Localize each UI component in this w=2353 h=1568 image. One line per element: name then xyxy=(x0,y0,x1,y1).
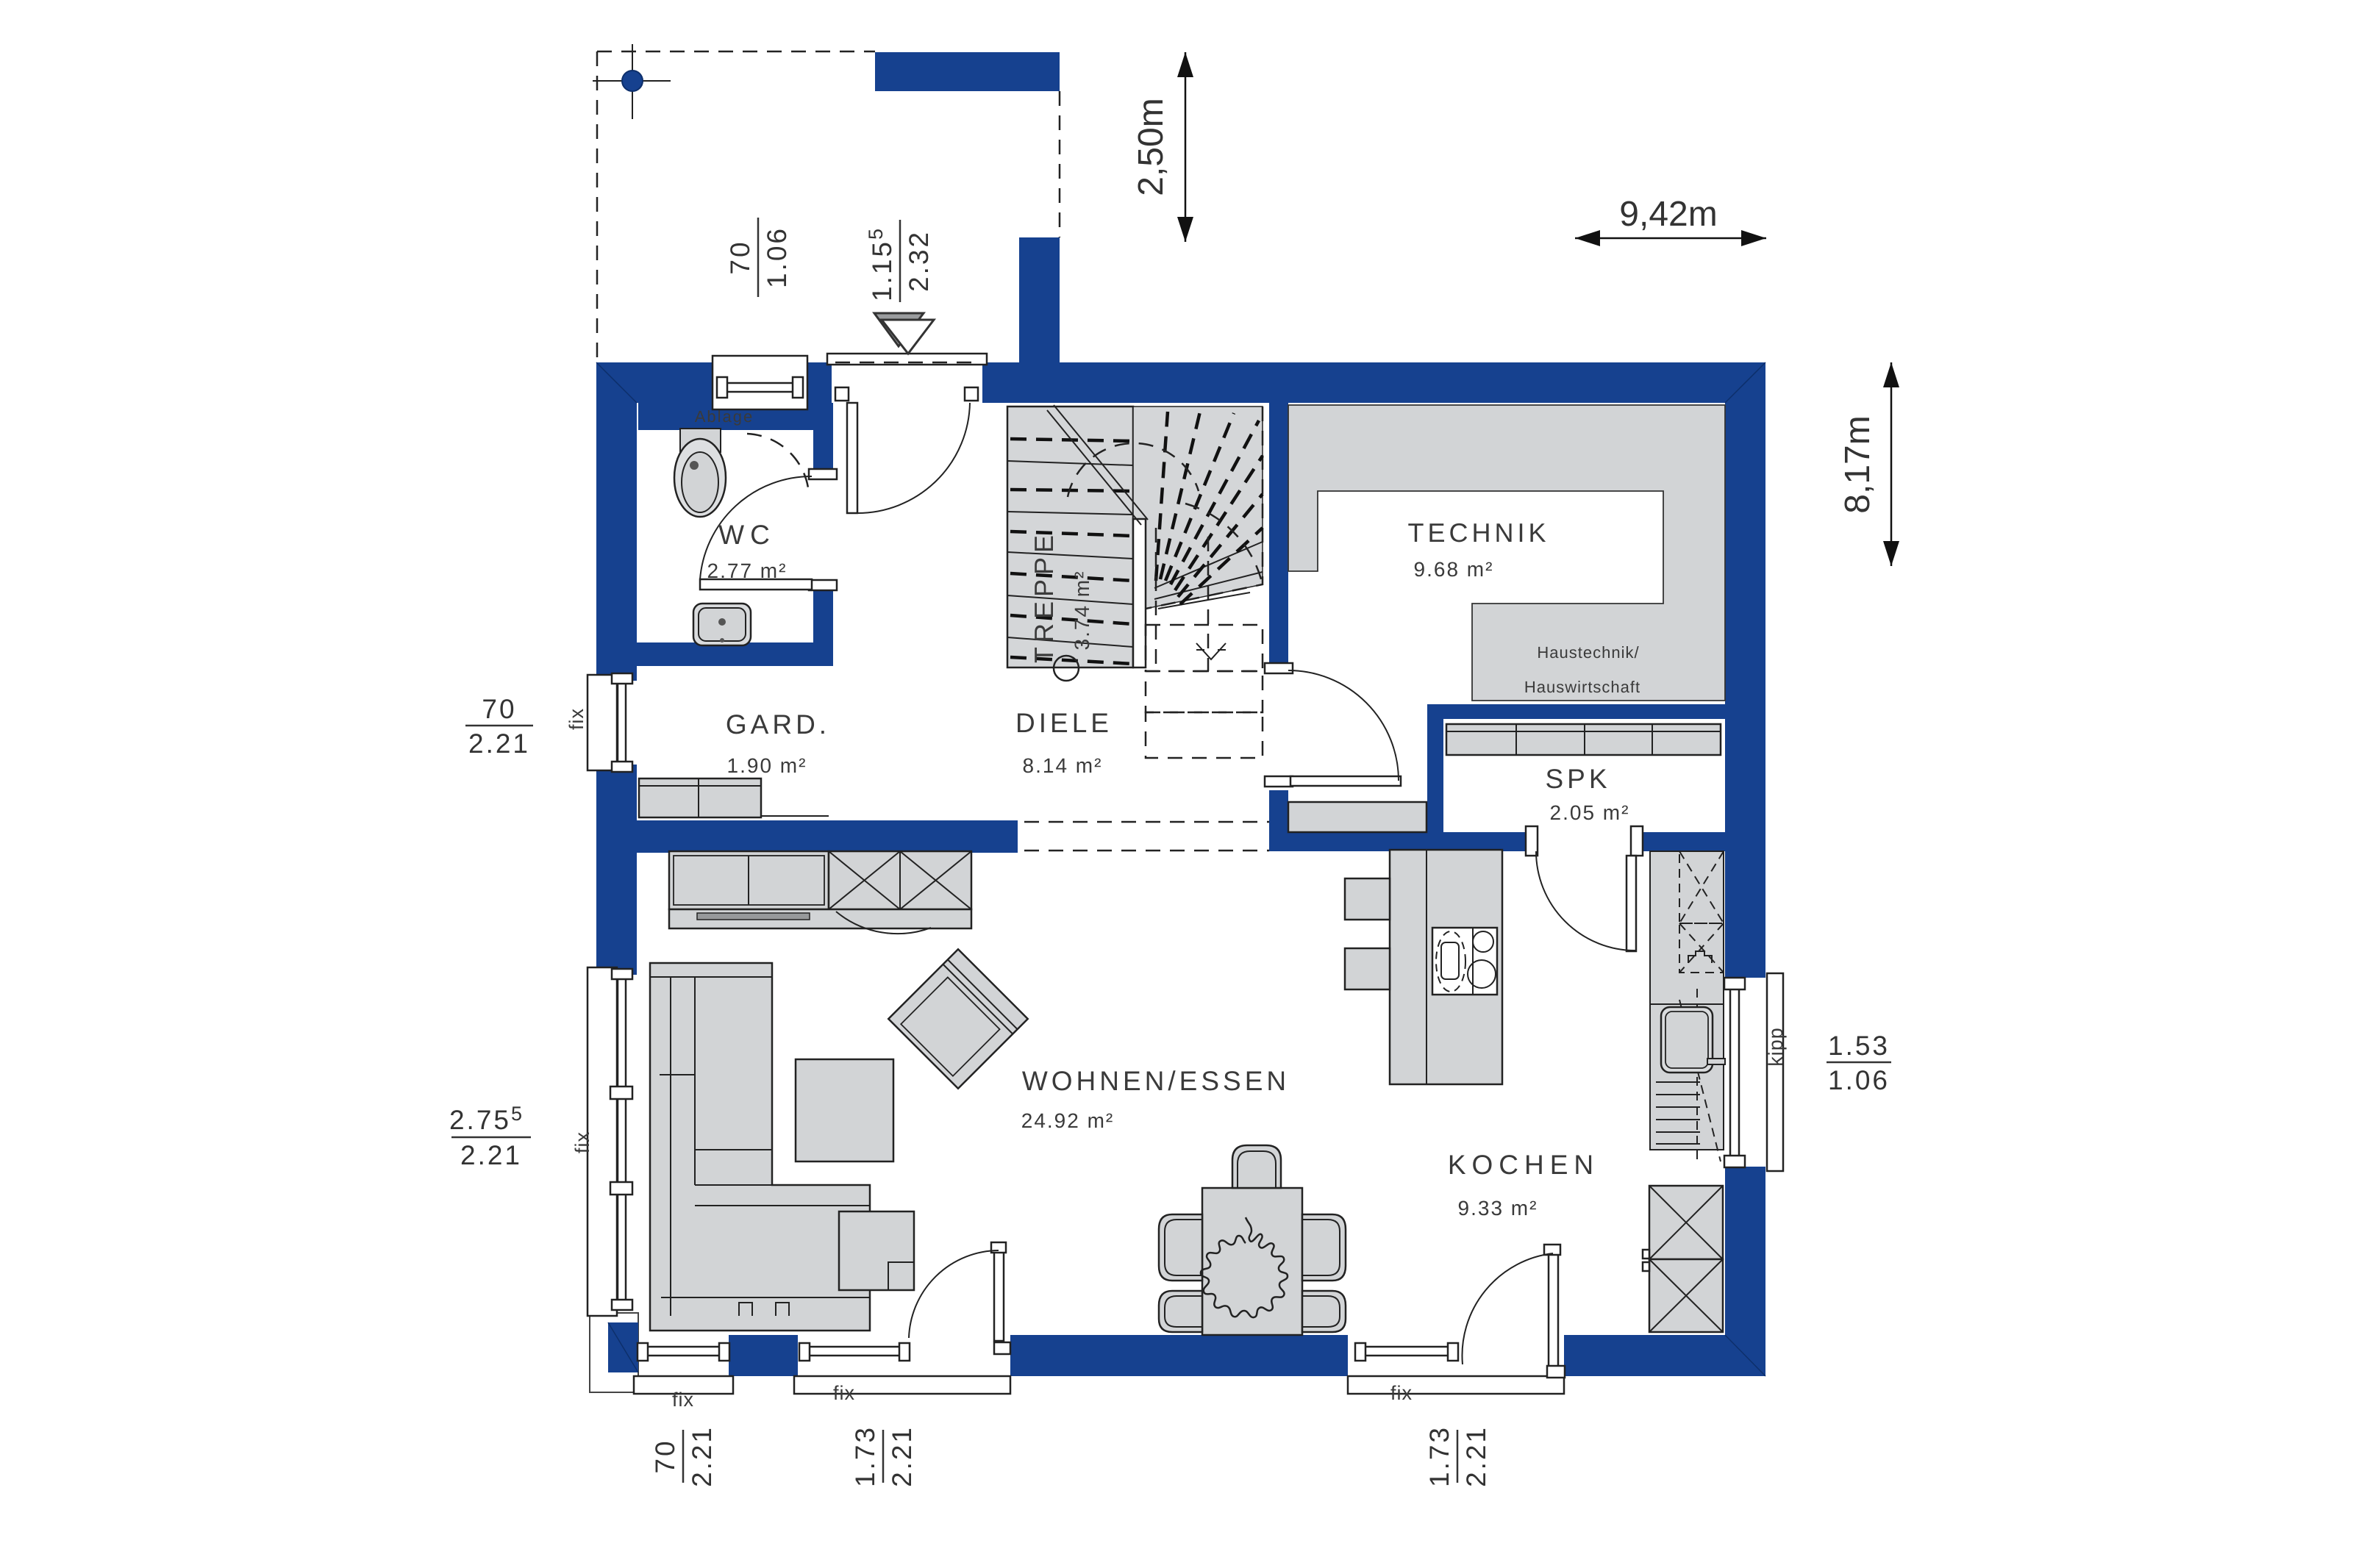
svg-text:2,50m: 2,50m xyxy=(1132,98,1171,196)
svg-text:TREPPE: TREPPE xyxy=(1029,531,1059,663)
svg-text:SPK: SPK xyxy=(1545,764,1610,794)
svg-text:2.21: 2.21 xyxy=(887,1425,917,1487)
svg-text:fix: fix xyxy=(571,1131,593,1153)
svg-text:9,42m: 9,42m xyxy=(1619,195,1717,234)
svg-text:2.05 m²: 2.05 m² xyxy=(1550,801,1630,824)
svg-text:2.21: 2.21 xyxy=(460,1140,522,1170)
svg-text:2.21: 2.21 xyxy=(687,1425,717,1487)
svg-text:1.90 m²: 1.90 m² xyxy=(727,754,807,777)
svg-text:Haustechnik/: Haustechnik/ xyxy=(1537,643,1639,662)
svg-text:kipp: kipp xyxy=(1765,1027,1787,1067)
svg-text:2.21: 2.21 xyxy=(1461,1425,1491,1487)
svg-text:KOCHEN: KOCHEN xyxy=(1448,1150,1599,1180)
svg-text:WC: WC xyxy=(718,520,776,550)
svg-text:fix: fix xyxy=(833,1382,855,1404)
svg-text:1.06: 1.06 xyxy=(762,226,792,288)
svg-text:3.74 m²: 3.74 m² xyxy=(1071,570,1093,651)
svg-text:WOHNEN/ESSEN: WOHNEN/ESSEN xyxy=(1022,1066,1290,1096)
svg-text:2.32: 2.32 xyxy=(904,230,934,292)
svg-text:70: 70 xyxy=(650,1439,680,1473)
svg-text:9.33 m²: 9.33 m² xyxy=(1458,1197,1538,1220)
svg-text:1.53: 1.53 xyxy=(1828,1031,1890,1061)
svg-text:fix: fix xyxy=(672,1389,694,1411)
svg-text:8,17m: 8,17m xyxy=(1838,415,1877,513)
svg-text:70: 70 xyxy=(725,240,755,274)
svg-text:fix: fix xyxy=(565,708,588,730)
svg-text:DIELE: DIELE xyxy=(1015,708,1113,738)
svg-text:2.77 m²: 2.77 m² xyxy=(707,559,788,582)
svg-text:fix: fix xyxy=(1390,1382,1413,1404)
svg-text:TECHNIK: TECHNIK xyxy=(1407,518,1549,548)
svg-text:70: 70 xyxy=(482,694,516,724)
svg-text:2.21: 2.21 xyxy=(468,728,530,759)
svg-text:GARD.: GARD. xyxy=(726,709,830,740)
svg-text:1.06: 1.06 xyxy=(1828,1065,1890,1095)
svg-text:Hauswirtschaft: Hauswirtschaft xyxy=(1524,678,1640,696)
svg-text:1.73: 1.73 xyxy=(850,1425,880,1487)
svg-text:9.68 m²: 9.68 m² xyxy=(1414,558,1494,581)
svg-text:24.92 m²: 24.92 m² xyxy=(1021,1109,1115,1132)
svg-text:8.14 m²: 8.14 m² xyxy=(1023,754,1103,777)
svg-text:1.73: 1.73 xyxy=(1424,1425,1454,1487)
